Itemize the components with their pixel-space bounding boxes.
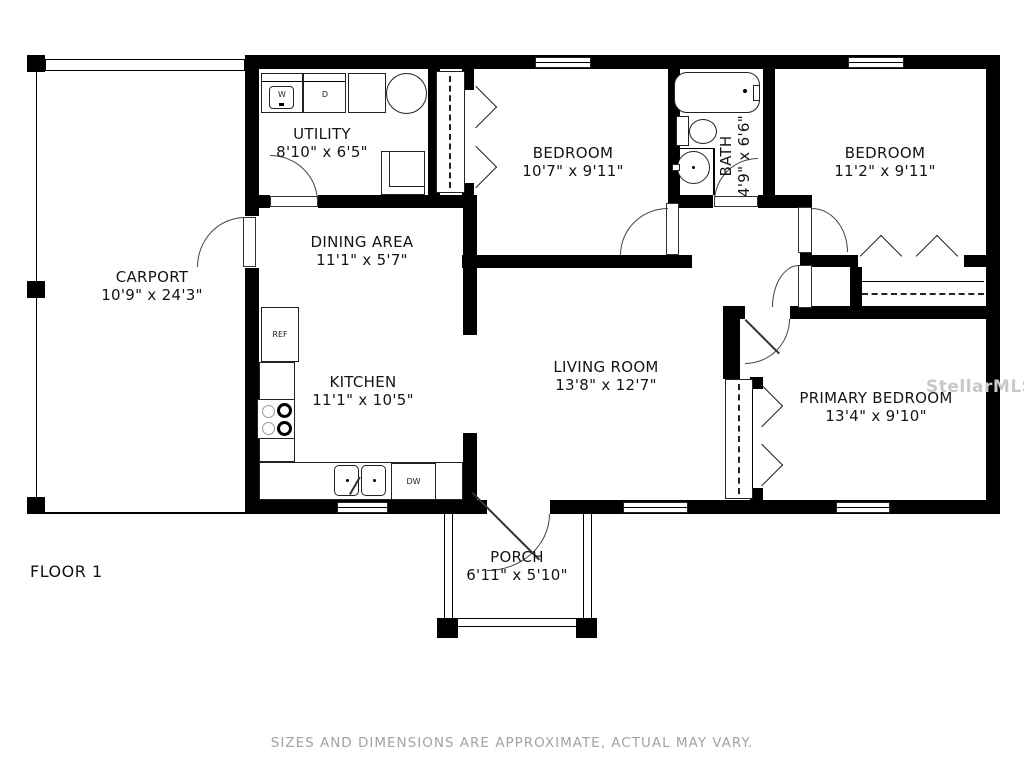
room-label-bath: BATH 4'9" x 6'6": [717, 101, 757, 211]
door-arc-hall-closet: [772, 265, 799, 307]
porch-post: [437, 618, 458, 638]
window: [836, 502, 890, 513]
bath-partition-line: [713, 148, 715, 195]
wall-primary-west: [723, 306, 740, 379]
wall-kitchen-east: [463, 195, 477, 335]
bath-sink: [677, 151, 710, 184]
closet-shelf-line: [862, 281, 984, 282]
dishwasher-label: DW: [392, 477, 435, 487]
window: [337, 502, 388, 513]
closet-rod-dashed: [449, 76, 451, 188]
watermark: StellarMLS: [926, 377, 1024, 397]
room-label-bedroom2: BEDROOM 11'2" x 9'11": [795, 144, 975, 180]
porch-post: [576, 618, 597, 638]
kitchen-sink: [361, 465, 386, 496]
refrigerator: REF: [261, 307, 299, 362]
room-label-bedroom1: BEDROOM 10'7" x 9'11": [483, 144, 663, 180]
closet-rod-dashed: [862, 293, 984, 295]
dryer: D: [303, 73, 346, 113]
wall-east: [986, 55, 1000, 514]
dryer-label: D: [318, 90, 332, 100]
door-leaf-bedroom2: [798, 207, 812, 253]
door-arc-dining: [197, 217, 245, 267]
water-heater: [386, 73, 427, 114]
carport-edge-line: [36, 59, 37, 514]
room-label-kitchen: KITCHEN 11'1" x 10'5": [273, 373, 453, 409]
closet-rod-dashed: [738, 384, 740, 494]
wall-west: [245, 55, 259, 514]
floor-label: FLOOR 1: [30, 562, 103, 581]
opening-primary-door: [745, 306, 790, 319]
door-arc-utility: [270, 155, 318, 202]
bifold-chevron: [916, 235, 958, 277]
disclaimer: SIZES AND DIMENSIONS ARE APPROXIMATE, AC…: [0, 735, 1024, 751]
wall-hallcloset-east: [850, 267, 862, 307]
carport-edge-line: [36, 512, 245, 514]
wall-bath-east: [763, 69, 775, 195]
bath-sink-tap: [672, 164, 680, 171]
carport-beam: [45, 59, 245, 71]
wall-hall-north: [462, 255, 692, 268]
toilet-bowl: [689, 119, 717, 144]
door-leaf-hall-closet: [798, 265, 812, 308]
washer: W: [261, 73, 303, 113]
refrigerator-label: REF: [262, 330, 298, 340]
floorplan: W D REF DW: [0, 0, 1024, 768]
window: [623, 502, 688, 513]
room-label-living: LIVING ROOM 13'8" x 12'7": [516, 358, 696, 394]
washer-label: W: [275, 90, 289, 100]
room-label-utility: UTILITY 8'10" x 6'5": [242, 125, 402, 161]
room-label-carport: CARPORT 10'9" x 24'3": [62, 268, 242, 304]
dishwasher: DW: [391, 463, 436, 500]
toilet-tank: [676, 116, 689, 146]
bifold-chevron: [860, 235, 902, 277]
bath-counter-line: [674, 148, 714, 149]
window: [535, 57, 591, 68]
door-arc-bedroom1: [620, 208, 668, 255]
room-label-dining: DINING AREA 11'1" x 5'7": [272, 233, 452, 269]
opening-front-door: [487, 500, 550, 514]
room-label-porch: PORCH 6'11" x 5'10": [427, 548, 607, 584]
utility-cabinet: [348, 73, 386, 113]
window: [848, 57, 904, 68]
door-arc-bedroom2: [812, 208, 848, 252]
wall-kitchen-east: [463, 433, 477, 500]
